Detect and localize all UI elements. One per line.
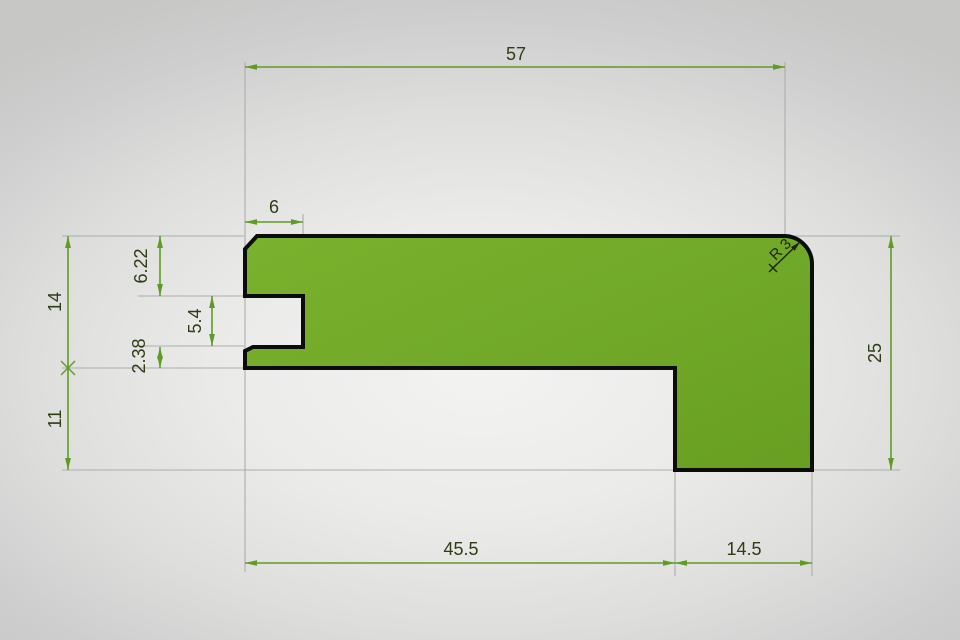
dimension-groove-height: 5.4 xyxy=(185,296,212,346)
dimension-label-bottom-right-width: 14.5 xyxy=(726,539,761,559)
dimension-left-height-lower: 11 xyxy=(45,361,75,470)
dimension-groove-width: 6 xyxy=(245,197,303,222)
dimension-left-height-upper: 14 xyxy=(45,236,68,368)
dimension-label-upper-left: 6.22 xyxy=(131,248,151,283)
dimension-label-lower-lip: 2.38 xyxy=(129,338,149,373)
dimension-bottom-right-width: 14.5 xyxy=(675,539,812,563)
profile-shape xyxy=(245,236,812,470)
dimension-upper-left: 6.22 xyxy=(131,236,160,296)
dimension-label-bottom-left-width: 45.5 xyxy=(443,539,478,559)
technical-drawing: 57 6 6.22 5.4 2.38 14 xyxy=(0,0,960,640)
dimension-bottom-left-width: 45.5 xyxy=(245,539,675,563)
dimension-label-groove-height: 5.4 xyxy=(185,308,205,333)
dimension-label-top-width: 57 xyxy=(506,44,526,64)
dimension-right-height: 25 xyxy=(865,236,891,470)
drawing-background: 57 6 6.22 5.4 2.38 14 xyxy=(0,0,960,640)
dimension-label-left-height-lower: 11 xyxy=(45,410,65,429)
dimension-label-left-height-upper: 14 xyxy=(45,292,65,312)
dimension-label-right-height: 25 xyxy=(865,343,885,363)
dimension-label-groove-width: 6 xyxy=(269,197,279,217)
dimension-top-width: 57 xyxy=(245,44,785,67)
